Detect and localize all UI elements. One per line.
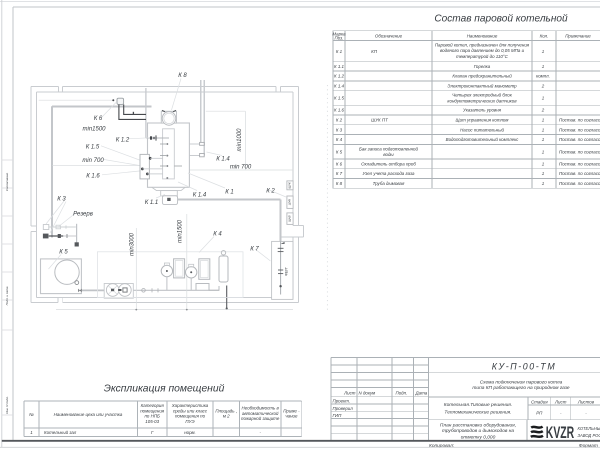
svg-text:Труба дымовая: Труба дымовая xyxy=(373,181,405,186)
svg-text:min1000: min1000 xyxy=(237,128,243,152)
svg-text:Листов: Листов xyxy=(577,400,595,405)
svg-text:К 6: К 6 xyxy=(336,161,343,166)
svg-text:К 1.4: К 1.4 xyxy=(216,156,230,162)
svg-text:Постав. по согласов: Постав. по согласов xyxy=(559,118,600,123)
svg-text:Водоподготовительный комплекс: Водоподготовительный комплекс xyxy=(446,136,520,142)
svg-text:Обозначение: Обозначение xyxy=(375,34,403,39)
svg-text:Указатель уровня: Указатель уровня xyxy=(463,108,502,113)
svg-text:Формат: Формат xyxy=(579,443,598,449)
svg-text:2: 2 xyxy=(541,83,545,88)
svg-text:чание: чание xyxy=(285,414,298,419)
svg-text:Площадь ,: Площадь , xyxy=(215,408,237,413)
svg-text:Категория: Категория xyxy=(141,403,165,408)
svg-text:К 1: К 1 xyxy=(225,189,234,195)
svg-text:Охладитель отбора проб: Охладитель отбора проб xyxy=(361,161,416,166)
svg-text:К 8: К 8 xyxy=(336,181,343,186)
svg-text:ЩУК: ЩУК xyxy=(287,182,291,189)
svg-text:Поз.: Поз. xyxy=(335,36,344,41)
svg-text:Бак запаса подготовленной: Бак запаса подготовленной xyxy=(359,145,419,151)
svg-text:Котельный зал: Котельный зал xyxy=(44,429,77,435)
svg-text:Подп. и дата: Подп. и дата xyxy=(5,286,9,305)
svg-text:Постав. по согласов: Постав. по согласов xyxy=(559,149,600,154)
svg-text:по НПБ: по НПБ xyxy=(144,414,160,419)
svg-text:К 1.5: К 1.5 xyxy=(86,144,100,150)
svg-text:Лист: Лист xyxy=(554,400,567,405)
svg-text:Электроконтактный манометр: Электроконтактный манометр xyxy=(447,82,517,88)
svg-text:Схема подключения парового кот: Схема подключения парового котла xyxy=(480,379,563,385)
svg-text:К 1.4: К 1.4 xyxy=(193,192,207,198)
svg-text:К 6: К 6 xyxy=(94,116,103,122)
svg-text:компл.: компл. xyxy=(536,74,550,79)
svg-text:ШУК: ШУК xyxy=(287,199,291,206)
svg-text:К 4: К 4 xyxy=(336,137,343,142)
svg-text:Насос питательный: Насос питательный xyxy=(460,126,504,132)
svg-text:Четырех электродный блок: Четырех электродный блок xyxy=(452,92,513,98)
svg-text:Постав. по согласов: Постав. по согласов xyxy=(559,171,600,176)
svg-text:отметку 0,000: отметку 0,000 xyxy=(461,434,496,440)
svg-text:№: № xyxy=(29,412,34,417)
svg-text:водяного пара давлением до 0,0: водяного пара давлением до 0,05 МПа и xyxy=(440,48,525,53)
svg-text:К 7: К 7 xyxy=(250,246,259,252)
svg-text:Приме -: Приме - xyxy=(283,408,300,413)
svg-text:К 1: К 1 xyxy=(336,49,343,54)
svg-text:Дата: Дата xyxy=(415,391,428,396)
svg-text:min 700: min 700 xyxy=(82,158,104,164)
svg-text:Копировал:: Копировал: xyxy=(429,443,455,449)
svg-text:К 3: К 3 xyxy=(336,127,343,132)
svg-text:Постав. по согласов: Постав. по согласов xyxy=(559,181,600,186)
svg-text:К 5: К 5 xyxy=(336,149,343,154)
svg-text:трубопроводов и дымоходов на: трубопроводов и дымоходов на xyxy=(442,428,514,434)
svg-text:среды или класс: среды или класс xyxy=(173,408,208,413)
svg-text:помещения по: помещения по xyxy=(175,414,206,419)
svg-text:Наименование: Наименование xyxy=(467,34,498,39)
svg-text:автоматической: автоматической xyxy=(242,410,279,416)
svg-text:Проверил: Проверил xyxy=(333,406,354,411)
svg-text:Необходимость в: Необходимость в xyxy=(242,406,280,411)
svg-text:КУ-П-00-ТМ: КУ-П-00-ТМ xyxy=(492,362,557,372)
svg-text:ФБУГ: ФБУГ xyxy=(284,266,288,276)
svg-text:м 2: м 2 xyxy=(223,414,230,419)
svg-text:Постав. по согласов: Постав. по согласов xyxy=(559,137,600,142)
svg-text:Горелка: Горелка xyxy=(474,64,491,69)
svg-text:min3000: min3000 xyxy=(129,232,135,256)
svg-text:Котельная.Типовые решения.: Котельная.Типовые решения. xyxy=(444,402,512,408)
svg-text:РП: РП xyxy=(536,410,543,415)
svg-text:типа КП работающего на природн: типа КП работающего на природном газе xyxy=(472,385,570,391)
svg-text:Постав. по согласов: Постав. по согласов xyxy=(559,161,600,166)
svg-text:Кол.: Кол. xyxy=(540,34,549,39)
svg-text:KVZR: KVZR xyxy=(546,424,574,442)
svg-text:К 2: К 2 xyxy=(266,188,275,194)
svg-text:К 4: К 4 xyxy=(213,231,222,237)
svg-text:Тепломеханические решения.: Тепломеханические решения. xyxy=(444,409,511,415)
svg-text:К 1.6: К 1.6 xyxy=(334,108,345,113)
svg-text:К 1.6: К 1.6 xyxy=(86,173,100,179)
svg-text:min1500: min1500 xyxy=(82,126,106,132)
svg-text:К 2: К 2 xyxy=(336,118,343,123)
svg-text:Наименование цеха или участка: Наименование цеха или участка xyxy=(54,412,123,417)
svg-text:105-03: 105-03 xyxy=(145,419,159,424)
svg-text:Стадия: Стадия xyxy=(531,400,548,405)
svg-text:Щит управления котлом: Щит управления котлом xyxy=(456,118,509,123)
svg-text:Инв. N подл.: Инв. N подл. xyxy=(5,396,9,414)
svg-text:К 1.5: К 1.5 xyxy=(334,96,345,101)
svg-text:КП: КП xyxy=(371,49,378,54)
svg-text:К 1.2: К 1.2 xyxy=(116,137,130,143)
svg-text:ЗАВОД РОСС: ЗАВОД РОСС xyxy=(578,433,600,438)
svg-text:min1500: min1500 xyxy=(178,219,184,243)
svg-text:К 5: К 5 xyxy=(59,250,68,256)
svg-text:К 1.2: К 1.2 xyxy=(334,74,345,79)
svg-text:Паровой котел, предназначен дл: Паровой котел, предназначен для получени… xyxy=(435,41,530,47)
svg-text:ГИП: ГИП xyxy=(333,413,343,418)
svg-text:температурой до 110°С: температурой до 110°С xyxy=(456,53,508,59)
svg-text:К 1.1: К 1.1 xyxy=(334,64,345,69)
svg-text:2: 2 xyxy=(541,108,545,113)
svg-text:Согласовано: Согласовано xyxy=(5,173,9,192)
svg-text:К 7: К 7 xyxy=(336,171,343,176)
svg-text:ШУК ПТ: ШУК ПТ xyxy=(371,118,388,123)
svg-text:воды: воды xyxy=(383,152,394,157)
svg-text:К 1.1: К 1.1 xyxy=(145,200,159,206)
svg-text:Постав. по согласов: Постав. по согласов xyxy=(559,127,600,132)
svg-text:Примечание: Примечание xyxy=(565,34,591,39)
svg-text:Резерв: Резерв xyxy=(73,211,93,217)
svg-text:Узел учета расхода газа: Узел учета расхода газа xyxy=(363,171,416,176)
svg-text:Характеристика: Характеристика xyxy=(171,403,209,408)
svg-text:Клапан предохранительный: Клапан предохранительный xyxy=(452,73,512,79)
svg-text:План расстановки оборудования,: План расстановки оборудования, xyxy=(440,422,516,428)
svg-text:К 1.4: К 1.4 xyxy=(334,83,345,88)
svg-text:К 3: К 3 xyxy=(57,197,66,203)
svg-text:Лист: Лист xyxy=(343,391,356,396)
svg-text:КОТЕЛЬНЫЙ: КОТЕЛЬНЫЙ xyxy=(578,426,600,431)
svg-text:ПУЭ: ПУЭ xyxy=(185,419,194,424)
svg-text:помещения: помещения xyxy=(140,408,165,413)
svg-text:пожарной защите: пожарной защите xyxy=(241,415,280,421)
svg-text:Экспликация помещений: Экспликация помещений xyxy=(104,384,225,395)
svg-text:К 8: К 8 xyxy=(178,73,187,79)
svg-text:норм.: норм. xyxy=(184,430,196,435)
svg-text:min 700: min 700 xyxy=(230,164,252,170)
svg-text:N докум: N докум xyxy=(359,391,376,396)
svg-text:кондуктометрических датчиков: кондуктометрических датчиков xyxy=(447,98,517,103)
svg-text:Состав паровой котельной: Состав паровой котельной xyxy=(434,14,568,25)
svg-text:Проект.: Проект. xyxy=(333,399,351,404)
svg-text:Подп.: Подп. xyxy=(396,391,408,396)
svg-text:ЩАВ: ЩАВ xyxy=(287,215,291,222)
